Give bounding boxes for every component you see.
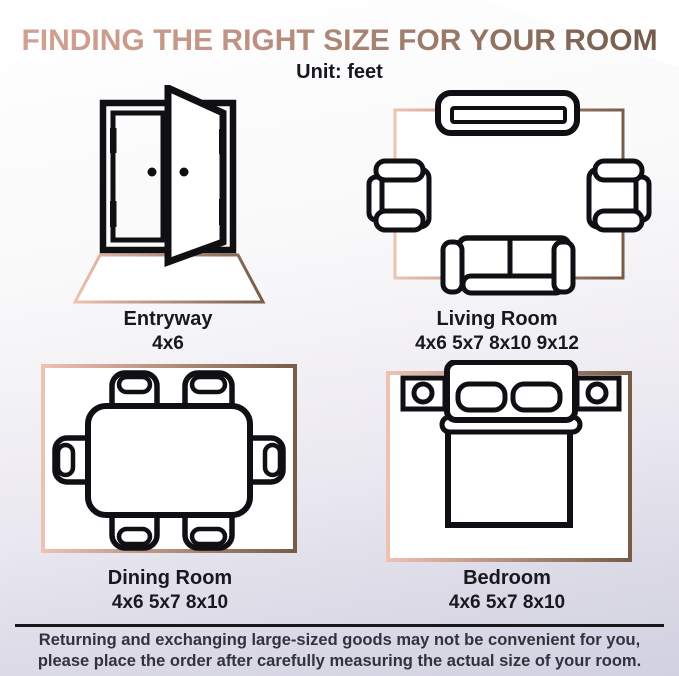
nightstand-right-icon	[577, 378, 619, 409]
armchair-right-icon	[589, 161, 649, 230]
double-door-icon	[103, 88, 233, 262]
room-label-bedroom: Bedroom 4x6 5x7 8x10	[367, 566, 647, 615]
room-sizes: 4x6 5x7 8x10	[30, 591, 310, 615]
bedroom-illustration	[370, 360, 660, 565]
left-door-knob	[148, 168, 157, 177]
door-hinge-icon	[110, 128, 117, 153]
dining-table	[88, 406, 250, 515]
entryway-illustration	[60, 85, 300, 305]
room-name: Living Room	[357, 307, 637, 331]
bed-body	[448, 428, 570, 525]
door-hinge-icon	[219, 199, 226, 225]
room-name: Bedroom	[367, 566, 647, 590]
room-label-living-room: Living Room 4x6 5x7 8x10 9x12	[357, 307, 637, 356]
pillow-icon	[513, 384, 560, 410]
room-sizes: 4x6 5x7 8x10 9x12	[357, 332, 637, 356]
footer-note-line2: please place the order after carefully m…	[0, 651, 679, 672]
nightstand-left-icon	[403, 378, 445, 409]
open-door-panel	[168, 88, 223, 262]
room-name: Dining Room	[30, 566, 310, 590]
armchair-left-icon	[369, 161, 429, 230]
page-title: FINDING THE RIGHT SIZE FOR YOUR ROOM	[0, 24, 679, 58]
room-label-entryway: Entryway 4x6	[48, 307, 288, 356]
bed-icon	[442, 362, 580, 525]
footer-note: Returning and exchanging large-sized goo…	[0, 630, 679, 672]
room-sizes: 4x6	[48, 332, 288, 356]
tv-screen	[452, 108, 565, 122]
living-room-illustration	[360, 85, 660, 310]
footer-note-line1: Returning and exchanging large-sized goo…	[0, 630, 679, 651]
dining-room-illustration	[20, 360, 320, 565]
sofa-icon	[443, 238, 573, 293]
rug-size-infographic: FINDING THE RIGHT SIZE FOR YOUR ROOM Uni…	[0, 0, 679, 676]
left-door-panel	[113, 113, 163, 240]
door-hinge-icon	[219, 129, 226, 154]
footer-divider	[15, 624, 664, 627]
open-door-knob	[180, 168, 189, 177]
room-name: Entryway	[48, 307, 288, 331]
door-hinge-icon	[110, 201, 117, 227]
unit-subtitle: Unit: feet	[0, 61, 679, 84]
pillow-icon	[458, 384, 505, 410]
room-sizes: 4x6 5x7 8x10	[367, 591, 647, 615]
tv-icon	[438, 93, 577, 133]
room-label-dining-room: Dining Room 4x6 5x7 8x10	[30, 566, 310, 615]
